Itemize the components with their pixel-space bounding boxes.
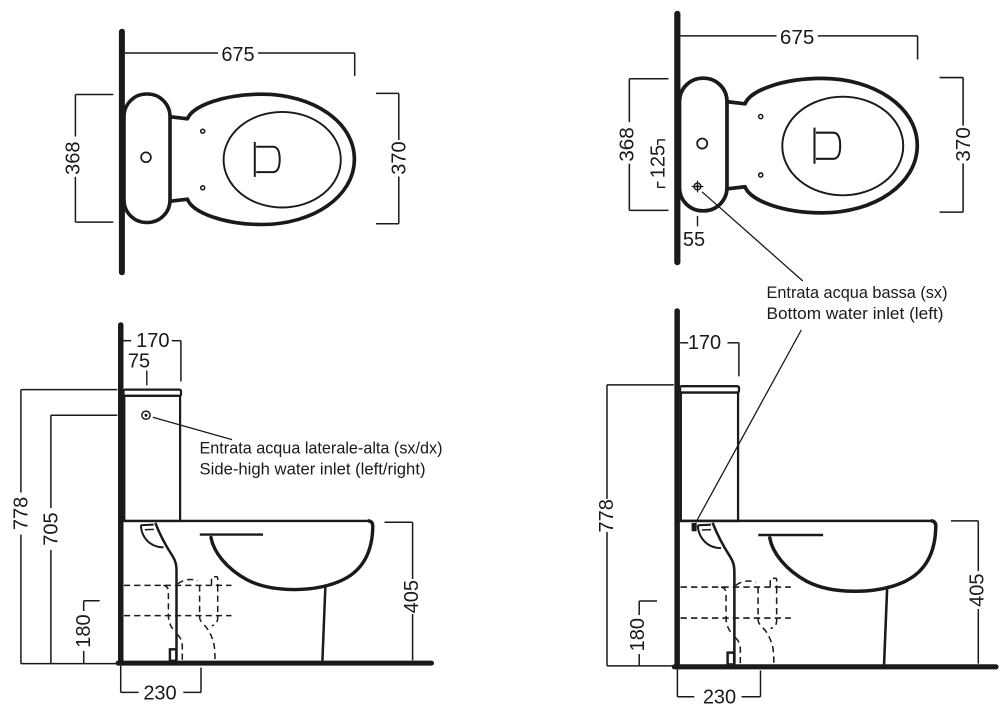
svg-text:705: 705 xyxy=(41,512,63,545)
svg-text:Entrata acqua bassa (sx): Entrata acqua bassa (sx) xyxy=(767,283,948,302)
svg-text:125: 125 xyxy=(647,145,669,178)
svg-text:230: 230 xyxy=(703,687,736,709)
svg-text:180: 180 xyxy=(73,614,95,647)
svg-text:170: 170 xyxy=(136,330,169,352)
svg-text:675: 675 xyxy=(780,26,814,49)
svg-text:Bottom water inlet (left): Bottom water inlet (left) xyxy=(767,304,944,323)
svg-text:405: 405 xyxy=(401,580,423,613)
svg-text:230: 230 xyxy=(143,682,176,704)
svg-text:75: 75 xyxy=(128,351,150,373)
svg-text:Entrata acqua laterale-alta (s: Entrata acqua laterale-alta (sx/dx) xyxy=(200,439,443,458)
svg-text:370: 370 xyxy=(389,141,411,174)
svg-text:Side-high water inlet (left/ri: Side-high water inlet (left/right) xyxy=(200,459,426,478)
svg-text:370: 370 xyxy=(952,127,975,161)
svg-text:675: 675 xyxy=(221,44,254,66)
svg-text:368: 368 xyxy=(63,142,85,175)
svg-text:778: 778 xyxy=(11,497,33,530)
svg-text:778: 778 xyxy=(596,499,618,532)
svg-text:405: 405 xyxy=(967,574,989,607)
svg-text:55: 55 xyxy=(683,229,705,251)
svg-text:368: 368 xyxy=(616,127,639,161)
svg-text:170: 170 xyxy=(688,332,721,354)
svg-text:180: 180 xyxy=(627,618,649,651)
